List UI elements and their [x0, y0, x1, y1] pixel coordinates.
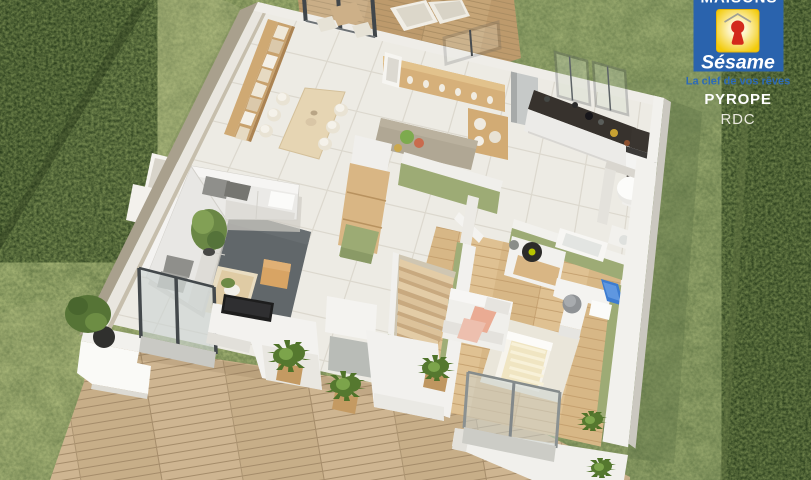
- svg-text:MAISONS: MAISONS: [700, 0, 777, 7]
- svg-text:PYROPE: PYROPE: [704, 91, 771, 108]
- svg-text:Sésame: Sésame: [701, 52, 775, 74]
- svg-text:RDC: RDC: [721, 111, 756, 128]
- svg-text:La clef de vos rêves: La clef de vos rêves: [686, 76, 791, 88]
